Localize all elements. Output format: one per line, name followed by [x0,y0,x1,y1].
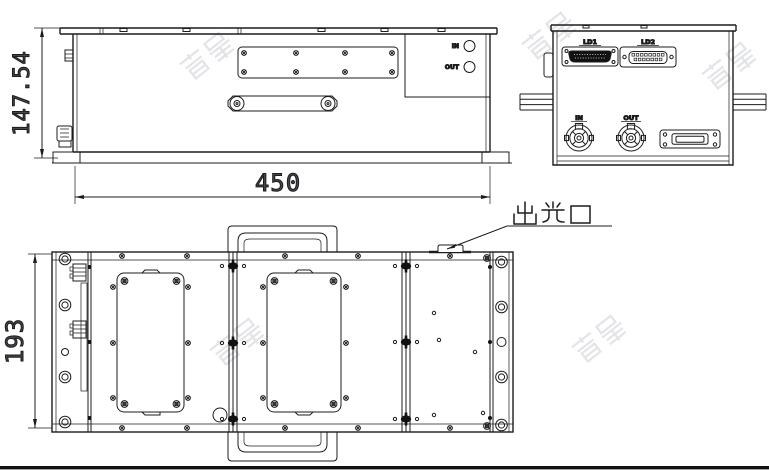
out-connector: OUT [617,114,646,151]
end-left-tab [544,53,553,77]
side-in-port [464,41,475,52]
end-rail-right [733,94,766,110]
side-left-screw [65,50,73,61]
ld1-connector: LD1 [562,38,618,66]
dim-height-text: 147.54 [10,50,35,135]
dim-height-147: 147.54 [10,28,60,158]
side-io-panel: IN OUT [405,34,490,97]
side-access-plate [238,47,398,78]
output-port-callout: 出光口 [447,202,612,249]
dim-width-text: 450 [255,169,301,197]
dim-width-450: 450 [75,166,490,204]
end-rail-left [520,94,553,110]
top-circle-feature [213,408,227,422]
in-connector: IN [565,114,594,151]
end-out-label: OUT [623,114,639,122]
top-divider-1 [220,252,245,432]
side-in-label: IN [452,43,459,50]
top-right-strip [484,252,508,432]
top-left-strip [59,252,91,432]
side-out-label: OUT [445,64,460,71]
ld2-label: LD2 [641,38,655,46]
side-left-fitting [57,126,72,147]
handle-top [228,226,337,252]
dim-height-193: 193 [1,254,52,428]
db-connector [660,130,720,148]
ld1-label: LD1 [583,38,598,46]
ld2-connector: LD2 [620,38,676,67]
dim-193-text: 193 [1,318,29,364]
handle-bottom [228,432,337,461]
drawing-frame-line [0,466,769,469]
cover-plate-2 [261,270,349,415]
drawing-canvas: 高慧 [0,0,769,473]
side-bar [228,96,337,111]
cover-plate-1 [111,270,191,415]
top-divider-2 [393,252,418,432]
end-in-label: IN [575,114,583,122]
drawing-page: 高慧 [0,0,769,473]
side-view: IN OUT [52,28,512,163]
end-view: LD1 LD2 [520,25,766,165]
side-out-port [464,62,475,73]
top-view [52,226,513,461]
watermark-text: 高慧 [200,47,228,64]
